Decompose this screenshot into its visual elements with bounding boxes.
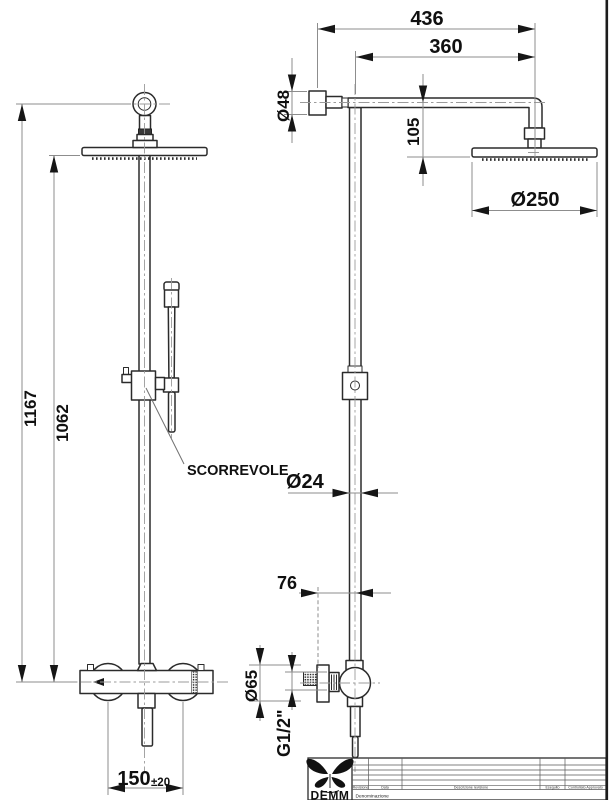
- dim-150-value: 150: [117, 768, 150, 790]
- col-label-data: Data: [381, 785, 389, 789]
- dim-105-value: 105: [404, 118, 423, 146]
- head-neck: [140, 116, 151, 130]
- dim-head-dia-value: Ø250: [511, 189, 560, 211]
- dim-thread-value: G1/2": [274, 709, 294, 757]
- demm-logo: DEMM: [306, 759, 353, 800]
- title-block: Revisione Data Descrizione revisione Ese…: [306, 758, 606, 800]
- mixer-inlet-flare: [138, 664, 157, 671]
- head-flange-upper: [137, 135, 153, 141]
- mixer-knob-side: [317, 665, 329, 702]
- col-label-eseguito: Eseguito: [546, 785, 560, 789]
- dim-knob-dia-value: Ø65: [242, 670, 261, 702]
- dim-76-value: 76: [277, 573, 297, 593]
- dim-1062: 1062: [49, 156, 80, 683]
- slider-knob: [122, 375, 132, 383]
- dim-pipe-dia-value: Ø24: [286, 471, 325, 493]
- dim-flange-dia: Ø48: [274, 58, 307, 143]
- dim-150-tolerance: ±20: [151, 777, 170, 789]
- mixer-front: [80, 664, 213, 747]
- head-flange-lower: [133, 141, 157, 148]
- slider-note-label: SCORREVOLE: [187, 463, 289, 479]
- mixer-knob-knurl-cap: [304, 672, 318, 686]
- col-label-descrizione: Descrizione revisione: [454, 785, 488, 789]
- slider-holder-arm: [156, 378, 165, 390]
- dim-1167: 1167: [16, 104, 131, 682]
- slider-knob-tab: [124, 368, 129, 375]
- wall-flange: [309, 91, 326, 115]
- slider-body: [132, 371, 156, 400]
- dim-head-dia: Ø250: [472, 162, 597, 217]
- slider-leader-line: [146, 388, 184, 464]
- dim-flange-dia-value: Ø48: [274, 90, 293, 122]
- col-label-revisione: Revisione: [353, 785, 369, 789]
- dim-360: 360: [356, 36, 536, 94]
- dim-76: 76: [277, 573, 391, 668]
- dim-1062-value: 1062: [53, 404, 72, 442]
- front-view: [80, 93, 213, 747]
- mixer-outlet-pipe: [142, 708, 153, 746]
- mixer-tab-left: [88, 665, 94, 671]
- demm-brand: DEMM: [310, 789, 349, 800]
- technical-drawing: 436 360 Ø48 105 Ø250 Ø24 76 Ø65: [0, 0, 612, 800]
- dim-105: 105: [404, 74, 470, 186]
- mixer-outlet-block: [138, 694, 155, 709]
- denomination-label: Denominazione: [356, 794, 390, 800]
- mixer-side: [304, 661, 371, 758]
- drawing-sheet: 436 360 Ø48 105 Ø250 Ø24 76 Ø65: [0, 0, 612, 800]
- dim-pipe-dia: Ø24: [286, 471, 398, 497]
- slider-note: SCORREVOLE: [146, 388, 289, 479]
- col-label-controllato: Controllato Approvato: [568, 785, 603, 789]
- mixer-tab-right: [198, 665, 204, 671]
- dim-436-value: 436: [410, 8, 443, 30]
- dim-1167-value: 1167: [21, 390, 40, 427]
- slider-bracket-front: [122, 368, 165, 401]
- hand-shower-holder: [164, 378, 179, 392]
- dim-360-value: 360: [429, 36, 462, 58]
- head-joint-band: [139, 129, 152, 135]
